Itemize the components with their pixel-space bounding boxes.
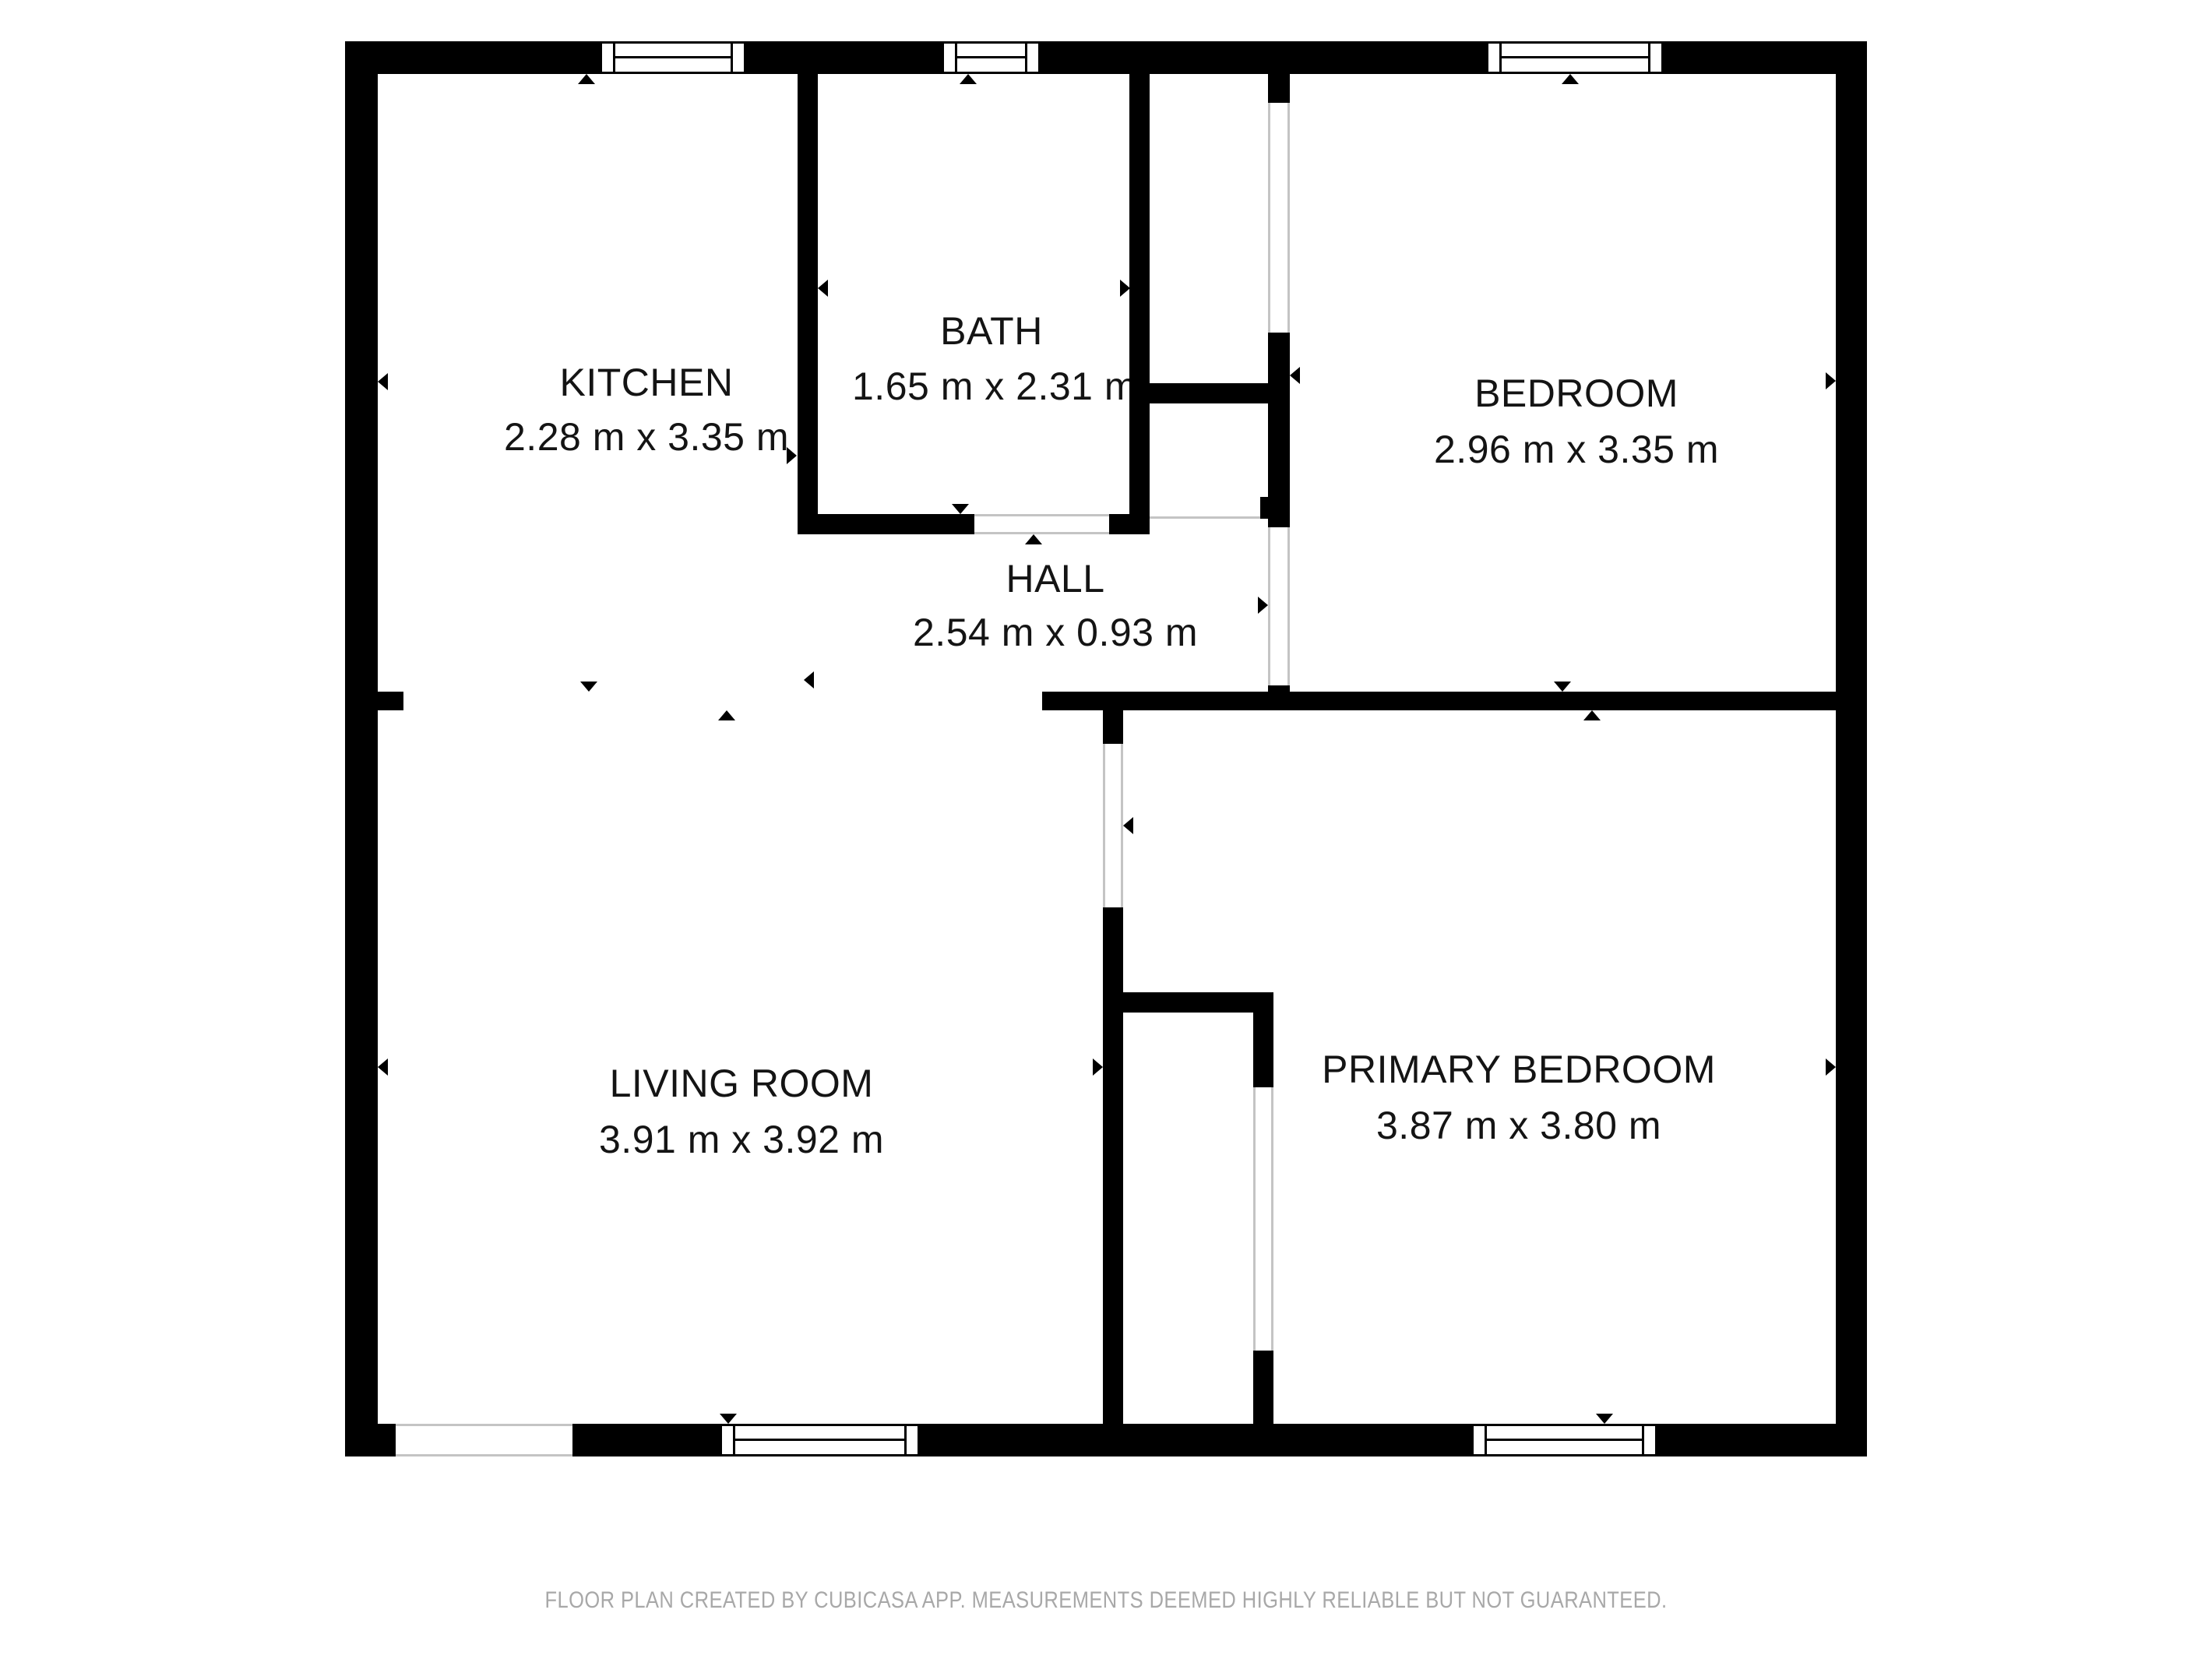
wall-bath-right-wall (1129, 74, 1150, 534)
wall-marker-up-icon (960, 74, 977, 84)
wall-marker-right-icon (1826, 1058, 1836, 1076)
wall-exterior-bottom-4 (1657, 1424, 1867, 1456)
wall-bedroom-left-nub (1260, 497, 1268, 519)
window-pane-line (735, 1439, 904, 1441)
wall-exterior-top-3 (1041, 41, 1486, 74)
door-opening-hairline (1103, 744, 1105, 907)
wall-marker-down-icon (1554, 682, 1571, 692)
footer-disclaimer: FLOOR PLAN CREATED BY CUBICASA APP. MEAS… (166, 1587, 2046, 1614)
wall-mid-wall-main (1042, 692, 1836, 710)
wall-marker-up-icon (718, 710, 735, 720)
wall-marker-down-icon (1596, 1414, 1613, 1424)
window-pane-line (1487, 1439, 1642, 1441)
floorplan-canvas: FLOOR PLAN CREATED BY CUBICASA APP. MEAS… (0, 0, 2212, 1659)
window-pane-line (904, 1426, 907, 1454)
door-opening-hairline (1150, 516, 1260, 519)
wall-exterior-right (1836, 41, 1867, 1456)
door-opening-hairline (396, 1424, 572, 1426)
wall-primary-closet-right-a (1253, 1013, 1273, 1087)
window-pane-line (957, 56, 1025, 58)
wall-marker-up-icon (1025, 534, 1042, 544)
wall-primary-closet-top (1123, 992, 1273, 1013)
wall-marker-right-icon (1120, 280, 1130, 297)
room-name-bath: BATH (940, 308, 1043, 354)
wall-marker-right-icon (1258, 597, 1268, 614)
room-dims-kitchen: 2.28 m x 3.35 m (504, 414, 789, 460)
wall-marker-left-icon (804, 671, 814, 689)
wall-marker-left-icon (1290, 367, 1300, 384)
wall-marker-down-icon (720, 1414, 737, 1424)
wall-bedroom-left-b (1268, 333, 1290, 527)
window-pane-line (1642, 1426, 1644, 1454)
kitchen-window-icon (600, 41, 746, 74)
wall-exterior-bottom-3 (920, 1424, 1471, 1456)
primary-window-icon (1471, 1424, 1657, 1456)
bath-window-icon (942, 41, 1041, 74)
door-opening-hairline (396, 1454, 572, 1456)
wall-marker-up-icon (1562, 74, 1579, 84)
door-opening-hairline (1287, 103, 1290, 333)
room-dims-hall: 2.54 m x 0.93 m (913, 610, 1198, 655)
room-name-hall: HALL (1006, 556, 1104, 601)
window-pane-line (1502, 56, 1648, 58)
wall-marker-right-icon (787, 447, 797, 464)
wall-marker-down-icon (952, 504, 969, 514)
room-name-bedroom: BEDROOM (1474, 371, 1678, 416)
wall-exterior-bottom-2 (572, 1424, 720, 1456)
wall-mid-wall-stub (378, 692, 403, 710)
wall-marker-left-icon (378, 1058, 388, 1076)
wall-kitchen-bath-wall (798, 74, 818, 534)
wall-primary-left-b (1103, 907, 1123, 1424)
wall-marker-left-icon (818, 280, 828, 297)
wall-exterior-bottom-1 (345, 1424, 396, 1456)
wall-bath-bottom-a (798, 514, 974, 534)
room-dims-bedroom: 2.96 m x 3.35 m (1434, 427, 1719, 472)
wall-bedroom-closet-bottom (1150, 383, 1290, 403)
door-opening-hairline (1268, 103, 1270, 333)
bedroom-window-icon (1486, 41, 1664, 74)
room-dims-bath: 1.65 m x 2.31 m (852, 364, 1137, 409)
wall-marker-left-icon (378, 373, 388, 390)
door-opening-hairline (1253, 1087, 1256, 1351)
wall-marker-left-icon (1123, 817, 1133, 834)
room-name-primary-bedroom: PRIMARY BEDROOM (1322, 1047, 1716, 1092)
wall-exterior-top-1 (345, 41, 600, 74)
window-pane-line (731, 44, 733, 72)
wall-marker-up-icon (578, 74, 595, 84)
room-name-kitchen: KITCHEN (560, 360, 734, 405)
wall-bath-bottom-b (1109, 514, 1150, 534)
room-dims-living-room: 3.91 m x 3.92 m (599, 1117, 884, 1162)
window-pane-line (1025, 44, 1027, 72)
door-opening-hairline (974, 514, 1109, 516)
wall-marker-down-icon (580, 682, 597, 692)
living-window-icon (720, 1424, 920, 1456)
wall-primary-left-a (1103, 710, 1123, 744)
wall-marker-right-icon (1826, 372, 1836, 389)
door-opening-hairline (1268, 527, 1270, 685)
wall-primary-closet-right-b (1253, 1351, 1273, 1424)
room-name-living-room: LIVING ROOM (610, 1061, 874, 1106)
window-pane-line (1648, 44, 1650, 72)
wall-exterior-left (345, 41, 378, 1456)
door-opening-hairline (1287, 527, 1290, 685)
wall-marker-up-icon (1583, 710, 1601, 720)
room-dims-primary-bedroom: 3.87 m x 3.80 m (1376, 1103, 1661, 1148)
door-opening-hairline (1271, 1087, 1273, 1351)
window-pane-line (615, 56, 731, 58)
wall-bedroom-left-a (1268, 74, 1290, 103)
wall-exterior-top-2 (746, 41, 942, 74)
wall-marker-right-icon (1093, 1058, 1103, 1076)
